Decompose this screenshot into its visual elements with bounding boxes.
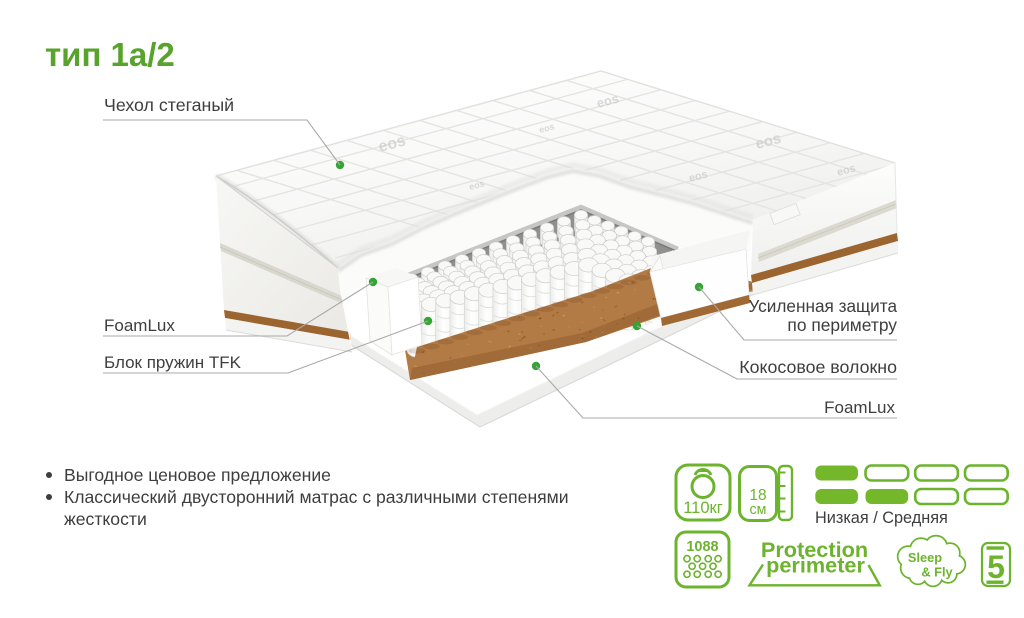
svg-text:1088: 1088 [686, 539, 718, 555]
svg-text:5: 5 [987, 549, 1005, 585]
svg-text:Усиленная защита: Усиленная защита [748, 296, 897, 316]
svg-text:Кокосовое волокно: Кокосовое волокно [739, 357, 897, 377]
svg-text:см: см [750, 502, 767, 518]
svg-text:Sleep: Sleep [908, 550, 942, 565]
svg-text:по периметру: по периметру [787, 315, 897, 335]
svg-text:eos: eos [274, 117, 294, 132]
svg-text:perimeter: perimeter [766, 553, 865, 578]
svg-text:& Fly: & Fly [921, 565, 953, 580]
svg-text:Низкая / Средняя: Низкая / Средняя [815, 509, 948, 527]
svg-text:FoamLux: FoamLux [824, 398, 895, 417]
svg-text:Чехол стеганый: Чехол стеганый [104, 95, 234, 115]
svg-text:тип 1а/2: тип 1а/2 [45, 36, 175, 73]
svg-text:FoamLux: FoamLux [104, 316, 175, 335]
svg-text:Блок пружин TFK: Блок пружин TFK [104, 353, 242, 372]
svg-text:жесткости: жесткости [64, 509, 147, 529]
svg-text:Классический двусторонний матр: Классический двусторонний матрас с разли… [64, 487, 569, 507]
svg-text:110кг: 110кг [683, 499, 723, 517]
svg-text:Выгодное ценовое предложение: Выгодное ценовое предложение [64, 465, 331, 485]
